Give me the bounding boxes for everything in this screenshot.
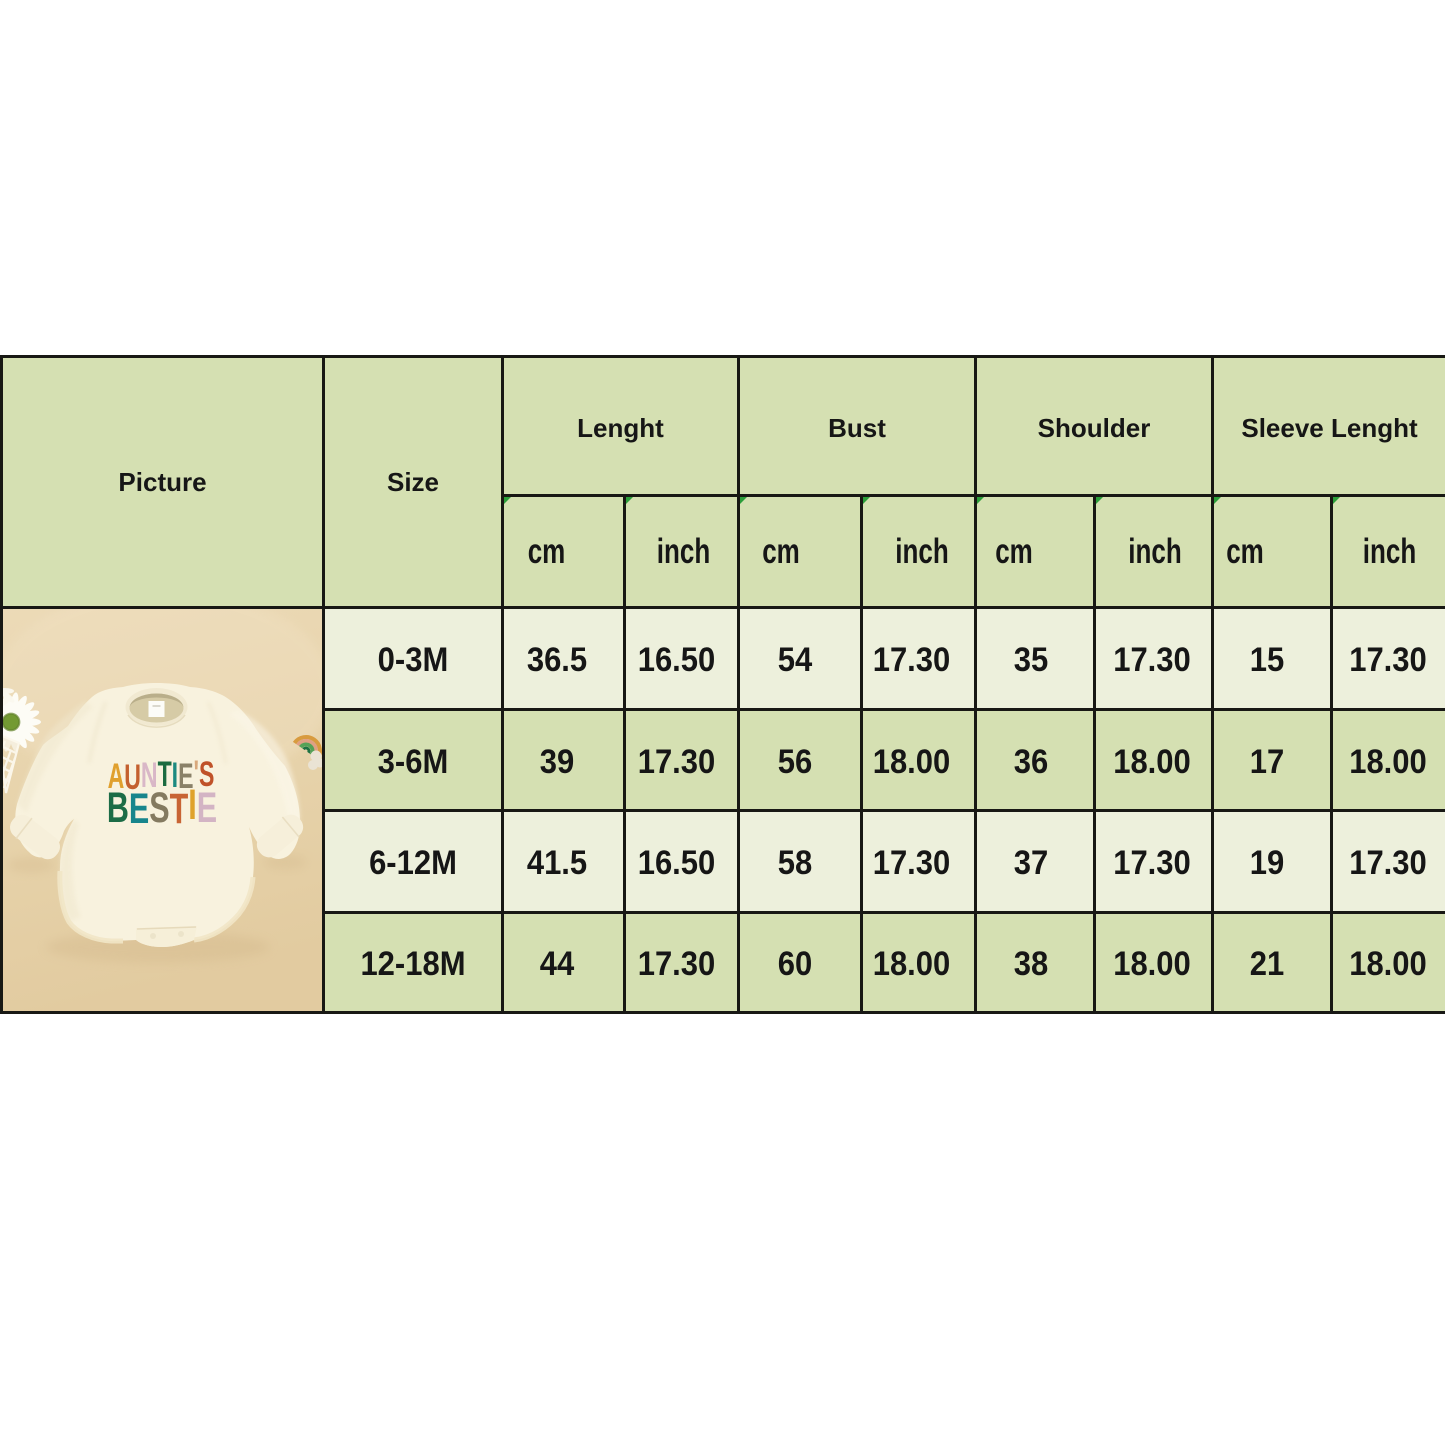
- svg-text:BESTIE: BESTIE: [107, 780, 217, 832]
